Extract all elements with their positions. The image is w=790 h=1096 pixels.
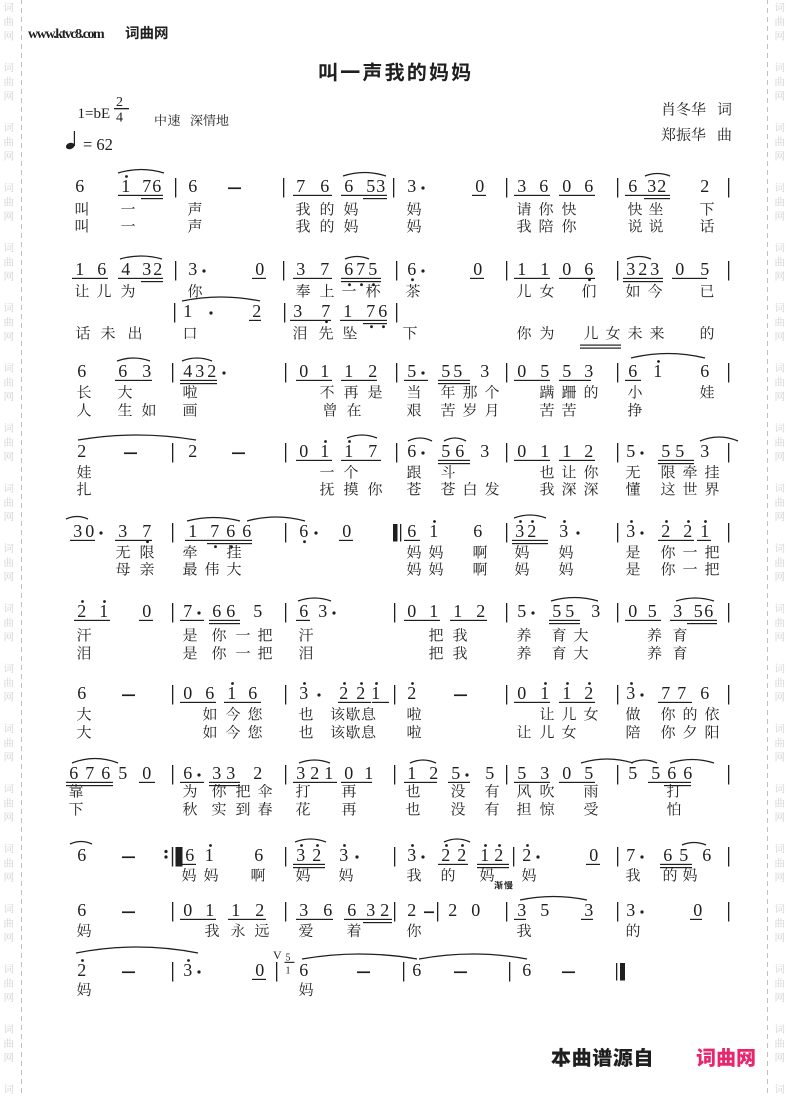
svg-text:0: 0 bbox=[183, 900, 192, 920]
svg-text:7: 7 bbox=[183, 601, 192, 621]
svg-text:5: 5 bbox=[118, 763, 127, 783]
svg-text:6: 6 bbox=[254, 845, 263, 865]
svg-text:3: 3 bbox=[647, 176, 656, 196]
svg-text:2: 2 bbox=[457, 845, 466, 865]
svg-text:7: 7 bbox=[366, 301, 375, 321]
svg-text:2: 2 bbox=[407, 900, 416, 920]
svg-text:5: 5 bbox=[628, 763, 637, 783]
svg-text:7: 7 bbox=[321, 301, 330, 321]
svg-text:3: 3 bbox=[226, 763, 235, 783]
svg-text:6: 6 bbox=[584, 176, 593, 196]
svg-text:0: 0 bbox=[299, 441, 308, 461]
svg-text:3: 3 bbox=[142, 361, 151, 381]
svg-text:3: 3 bbox=[376, 176, 385, 196]
svg-text:1: 1 bbox=[183, 301, 192, 321]
svg-text:5: 5 bbox=[407, 361, 416, 381]
svg-text:7: 7 bbox=[368, 441, 377, 461]
svg-text:1: 1 bbox=[324, 763, 333, 783]
svg-text:7: 7 bbox=[142, 176, 151, 196]
svg-text:1: 1 bbox=[99, 601, 108, 621]
svg-text:4: 4 bbox=[183, 361, 192, 381]
svg-text:6: 6 bbox=[628, 176, 637, 196]
svg-text:2: 2 bbox=[312, 845, 321, 865]
svg-text:6: 6 bbox=[226, 521, 235, 541]
svg-text:6: 6 bbox=[704, 601, 713, 621]
svg-text:0: 0 bbox=[142, 763, 151, 783]
svg-text:6: 6 bbox=[69, 763, 78, 783]
svg-text:2: 2 bbox=[638, 259, 647, 279]
svg-text:3: 3 bbox=[626, 900, 635, 920]
svg-text:6: 6 bbox=[77, 683, 86, 703]
svg-text:5: 5 bbox=[661, 441, 670, 461]
svg-text:1: 1 bbox=[407, 763, 416, 783]
svg-text:0: 0 bbox=[675, 259, 684, 279]
svg-text:2: 2 bbox=[188, 441, 197, 461]
svg-text:3: 3 bbox=[142, 259, 151, 279]
svg-text:2: 2 bbox=[339, 683, 348, 703]
svg-text:0: 0 bbox=[255, 960, 264, 980]
svg-text:0: 0 bbox=[299, 361, 308, 381]
svg-text:2: 2 bbox=[657, 176, 666, 196]
svg-text:0: 0 bbox=[85, 521, 94, 541]
svg-text:6: 6 bbox=[700, 361, 709, 381]
svg-text:1: 1 bbox=[517, 259, 526, 279]
svg-text:3: 3 bbox=[188, 259, 197, 279]
svg-text:2: 2 bbox=[77, 441, 86, 461]
svg-text:2: 2 bbox=[700, 176, 709, 196]
svg-text:2: 2 bbox=[253, 763, 262, 783]
svg-text:6: 6 bbox=[473, 521, 482, 541]
svg-text:5: 5 bbox=[540, 361, 549, 381]
svg-text:0: 0 bbox=[183, 683, 192, 703]
svg-text:5: 5 bbox=[584, 763, 593, 783]
svg-text:1: 1 bbox=[75, 259, 84, 279]
svg-text:1: 1 bbox=[205, 900, 214, 920]
svg-text:7: 7 bbox=[677, 683, 686, 703]
svg-text:5: 5 bbox=[517, 763, 526, 783]
svg-text:0: 0 bbox=[471, 900, 480, 920]
svg-text:3: 3 bbox=[626, 683, 635, 703]
svg-text:5: 5 bbox=[540, 900, 549, 920]
svg-text:1: 1 bbox=[320, 361, 329, 381]
svg-text:www.ktvc8.com: www.ktvc8.com bbox=[28, 27, 105, 42]
svg-text:5: 5 bbox=[451, 763, 460, 783]
svg-text:1: 1 bbox=[540, 441, 549, 461]
svg-text:3: 3 bbox=[517, 900, 526, 920]
svg-text:5: 5 bbox=[651, 763, 660, 783]
svg-text:2: 2 bbox=[77, 960, 86, 980]
svg-text:1: 1 bbox=[429, 601, 438, 621]
svg-text:6: 6 bbox=[188, 176, 197, 196]
svg-text:0: 0 bbox=[142, 601, 151, 621]
svg-text:3: 3 bbox=[480, 441, 489, 461]
svg-text:3: 3 bbox=[559, 521, 568, 541]
svg-text:3: 3 bbox=[407, 845, 416, 865]
svg-text:3: 3 bbox=[626, 259, 635, 279]
svg-text:= 62: = 62 bbox=[83, 135, 113, 154]
svg-text:5: 5 bbox=[552, 601, 561, 621]
svg-text:3: 3 bbox=[118, 521, 127, 541]
svg-text:5: 5 bbox=[648, 601, 657, 621]
svg-text:2: 2 bbox=[661, 521, 670, 541]
svg-text:6: 6 bbox=[75, 176, 84, 196]
svg-text:6: 6 bbox=[455, 441, 464, 461]
svg-text:3: 3 bbox=[296, 763, 305, 783]
svg-text:3: 3 bbox=[293, 301, 302, 321]
svg-text:6: 6 bbox=[299, 960, 308, 980]
svg-text:0: 0 bbox=[517, 361, 526, 381]
svg-text:V: V bbox=[273, 948, 282, 962]
svg-text:0: 0 bbox=[562, 763, 571, 783]
svg-text:3: 3 bbox=[318, 601, 327, 621]
svg-text:3: 3 bbox=[700, 441, 709, 461]
svg-text:2: 2 bbox=[207, 361, 216, 381]
svg-text:7: 7 bbox=[320, 259, 329, 279]
svg-text:2: 2 bbox=[116, 95, 123, 110]
svg-text:3: 3 bbox=[296, 259, 305, 279]
svg-text:6: 6 bbox=[539, 176, 548, 196]
svg-text:0: 0 bbox=[344, 763, 353, 783]
svg-text:0: 0 bbox=[517, 683, 526, 703]
svg-text:3: 3 bbox=[591, 601, 600, 621]
svg-text:6: 6 bbox=[667, 763, 676, 783]
svg-text:1: 1 bbox=[653, 361, 662, 381]
svg-text:3: 3 bbox=[650, 259, 659, 279]
svg-text:3: 3 bbox=[673, 601, 682, 621]
svg-text:6: 6 bbox=[700, 683, 709, 703]
svg-text:3: 3 bbox=[73, 521, 82, 541]
svg-text:2: 2 bbox=[494, 845, 503, 865]
svg-text:1: 1 bbox=[344, 361, 353, 381]
svg-text:1: 1 bbox=[371, 683, 380, 703]
svg-text:2: 2 bbox=[448, 900, 457, 920]
svg-text:6: 6 bbox=[183, 763, 192, 783]
svg-text:2: 2 bbox=[429, 763, 438, 783]
svg-text:1: 1 bbox=[562, 441, 571, 461]
svg-text:1: 1 bbox=[429, 521, 438, 541]
svg-text:1: 1 bbox=[343, 301, 352, 321]
svg-text:6: 6 bbox=[522, 960, 531, 980]
svg-text:5: 5 bbox=[675, 441, 684, 461]
svg-text:6: 6 bbox=[412, 960, 421, 980]
svg-text:1: 1 bbox=[344, 441, 353, 461]
svg-text:1: 1 bbox=[540, 683, 549, 703]
svg-text:2: 2 bbox=[441, 845, 450, 865]
svg-text:5: 5 bbox=[453, 361, 462, 381]
svg-text:5: 5 bbox=[368, 259, 377, 279]
svg-text:6: 6 bbox=[407, 441, 416, 461]
svg-text:2: 2 bbox=[476, 601, 485, 621]
svg-text:1=bE: 1=bE bbox=[78, 106, 111, 122]
svg-text:2: 2 bbox=[310, 763, 319, 783]
svg-text:0: 0 bbox=[517, 441, 526, 461]
svg-text:0: 0 bbox=[562, 259, 571, 279]
svg-text:6: 6 bbox=[77, 361, 86, 381]
svg-text:6: 6 bbox=[101, 763, 110, 783]
svg-text:6: 6 bbox=[663, 845, 672, 865]
svg-text:3: 3 bbox=[212, 763, 221, 783]
svg-text:7: 7 bbox=[626, 845, 635, 865]
svg-text:7: 7 bbox=[85, 763, 94, 783]
svg-text:1: 1 bbox=[562, 683, 571, 703]
svg-text:6: 6 bbox=[584, 259, 593, 279]
svg-text:1: 1 bbox=[227, 683, 236, 703]
svg-text:2: 2 bbox=[368, 361, 377, 381]
svg-text:6: 6 bbox=[226, 601, 235, 621]
svg-text:0: 0 bbox=[693, 900, 702, 920]
svg-text:1: 1 bbox=[480, 845, 489, 865]
svg-text:0: 0 bbox=[475, 176, 484, 196]
svg-text:2: 2 bbox=[356, 683, 365, 703]
svg-text:1: 1 bbox=[364, 763, 373, 783]
svg-text:1: 1 bbox=[540, 259, 549, 279]
svg-text:2: 2 bbox=[527, 521, 536, 541]
svg-text:5: 5 bbox=[565, 601, 574, 621]
svg-text:1: 1 bbox=[453, 601, 462, 621]
svg-text:0: 0 bbox=[589, 845, 598, 865]
svg-text:6: 6 bbox=[344, 176, 353, 196]
svg-text:3: 3 bbox=[626, 521, 635, 541]
svg-text:3: 3 bbox=[339, 845, 348, 865]
svg-text:7: 7 bbox=[296, 176, 305, 196]
svg-text:0: 0 bbox=[562, 176, 571, 196]
svg-text:3: 3 bbox=[584, 900, 593, 920]
svg-text:5: 5 bbox=[366, 176, 375, 196]
svg-text:1: 1 bbox=[188, 521, 197, 541]
svg-text:1: 1 bbox=[121, 176, 130, 196]
svg-text:6: 6 bbox=[702, 845, 711, 865]
svg-text:7: 7 bbox=[356, 259, 365, 279]
svg-text:2: 2 bbox=[380, 900, 389, 920]
svg-text:1: 1 bbox=[231, 900, 240, 920]
svg-text:0: 0 bbox=[473, 259, 482, 279]
svg-text:3: 3 bbox=[299, 900, 308, 920]
svg-text:1: 1 bbox=[320, 441, 329, 461]
svg-text:7: 7 bbox=[210, 521, 219, 541]
svg-text:1: 1 bbox=[700, 521, 709, 541]
svg-text:6: 6 bbox=[185, 845, 194, 865]
svg-text:1: 1 bbox=[286, 966, 291, 977]
svg-text:2: 2 bbox=[522, 845, 531, 865]
svg-text:5: 5 bbox=[517, 601, 526, 621]
svg-text:4: 4 bbox=[121, 259, 130, 279]
svg-text:1: 1 bbox=[205, 845, 214, 865]
svg-text:6: 6 bbox=[407, 259, 416, 279]
svg-text:6: 6 bbox=[347, 900, 356, 920]
svg-text:6: 6 bbox=[152, 176, 161, 196]
svg-text:6: 6 bbox=[205, 683, 214, 703]
svg-text:4: 4 bbox=[116, 111, 123, 126]
svg-text:2: 2 bbox=[683, 521, 692, 541]
svg-text:7: 7 bbox=[142, 521, 151, 541]
svg-text:6: 6 bbox=[628, 361, 637, 381]
svg-text:7: 7 bbox=[661, 683, 670, 703]
svg-text:6: 6 bbox=[77, 845, 86, 865]
svg-text:6: 6 bbox=[683, 763, 692, 783]
svg-text:2: 2 bbox=[584, 683, 593, 703]
svg-text:3: 3 bbox=[366, 900, 375, 920]
svg-text:6: 6 bbox=[378, 301, 387, 321]
svg-text:2: 2 bbox=[255, 900, 264, 920]
svg-text:0: 0 bbox=[255, 259, 264, 279]
svg-text:2: 2 bbox=[252, 301, 261, 321]
svg-text:0: 0 bbox=[628, 601, 637, 621]
svg-text:6: 6 bbox=[97, 259, 106, 279]
svg-text:6: 6 bbox=[248, 683, 257, 703]
svg-text:5: 5 bbox=[441, 361, 450, 381]
svg-text:3: 3 bbox=[515, 521, 524, 541]
svg-text:3: 3 bbox=[183, 960, 192, 980]
svg-text:6: 6 bbox=[299, 601, 308, 621]
svg-text:6: 6 bbox=[323, 900, 332, 920]
svg-text:6: 6 bbox=[344, 259, 353, 279]
svg-text:6: 6 bbox=[242, 521, 251, 541]
svg-text:3: 3 bbox=[517, 176, 526, 196]
svg-text:6: 6 bbox=[299, 521, 308, 541]
svg-text:3: 3 bbox=[195, 361, 204, 381]
svg-text:5: 5 bbox=[679, 845, 688, 865]
svg-text:3: 3 bbox=[296, 845, 305, 865]
svg-text:6: 6 bbox=[77, 900, 86, 920]
svg-text:5: 5 bbox=[694, 601, 703, 621]
svg-text:0: 0 bbox=[407, 601, 416, 621]
svg-text:3: 3 bbox=[480, 361, 489, 381]
svg-text:5: 5 bbox=[441, 441, 450, 461]
svg-text:3: 3 bbox=[407, 176, 416, 196]
svg-text:2: 2 bbox=[584, 441, 593, 461]
svg-text:0: 0 bbox=[342, 521, 351, 541]
svg-text:2: 2 bbox=[407, 683, 416, 703]
svg-text:6: 6 bbox=[118, 361, 127, 381]
svg-text:3: 3 bbox=[540, 763, 549, 783]
svg-text:5: 5 bbox=[700, 259, 709, 279]
svg-text:6: 6 bbox=[407, 521, 416, 541]
svg-text:5: 5 bbox=[253, 601, 262, 621]
svg-text:5: 5 bbox=[626, 441, 635, 461]
svg-text:3: 3 bbox=[299, 683, 308, 703]
svg-text:6: 6 bbox=[212, 601, 221, 621]
svg-text:5: 5 bbox=[562, 361, 571, 381]
svg-text:6: 6 bbox=[320, 176, 329, 196]
svg-text:5: 5 bbox=[485, 763, 494, 783]
svg-text:2: 2 bbox=[77, 601, 86, 621]
svg-text:3: 3 bbox=[584, 361, 593, 381]
svg-text:2: 2 bbox=[153, 259, 162, 279]
